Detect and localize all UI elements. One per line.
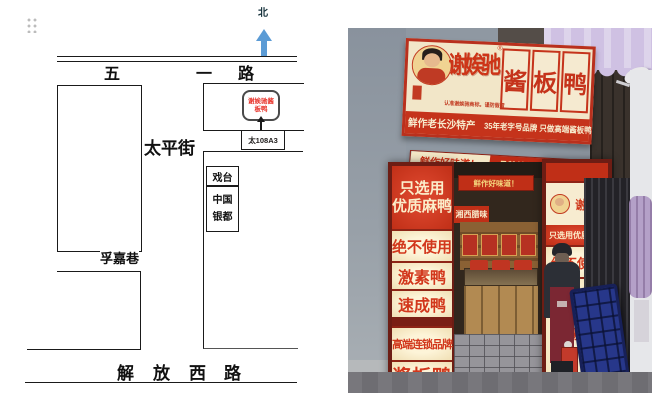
wuyi-char-1: 五: [104, 60, 120, 84]
pillar-divider: [392, 317, 452, 325]
taiping-street-label: 太平街: [144, 134, 195, 159]
strip-right-text: 35年老字号品牌 只做高端酱板鸭: [483, 120, 591, 137]
apron-logo: [557, 301, 567, 307]
tile-ya: 鸭: [560, 51, 591, 113]
registered-mark: ®: [497, 45, 502, 52]
counter-product: [470, 260, 488, 270]
storefront-photo: 谢娭驰 ® 认准谢娭驰商标。谨防假冒 酱 板 鸭 鲜作老长沙特产 35年老字号品…: [348, 28, 652, 393]
wuyi-char-2: 一: [196, 60, 212, 84]
address-plate: 太108A3: [241, 130, 285, 150]
product-box: [520, 234, 536, 256]
tile-ban: 板: [530, 50, 561, 112]
front-pavement: [348, 372, 652, 393]
north-label: 北: [258, 4, 268, 19]
left-sign-line1: 只选用: [399, 180, 444, 198]
purple-puffer-jacket: [629, 196, 652, 298]
brand-block: 谢娭驰 ® 认准谢娭驰商标。谨防假冒: [446, 43, 501, 115]
display-pants: [634, 300, 649, 342]
document-page: 北 五 一 路 太平街 孚嘉巷 谢娭驰酱 板鸭 太108A3 戏台 中国 银都 …: [0, 0, 665, 400]
shop-callout-line2: 板鸭: [255, 106, 268, 114]
wuyi-char-3: 路: [238, 60, 254, 84]
shop-callout-line1: 谢娭驰酱: [248, 98, 274, 106]
left-pillar-signs: 只选用 优质麻鸭 绝不使用 激素鸭 速成鸭 高端连锁品牌 酱板鸭: [388, 162, 456, 393]
jiefang-char-1: 解: [117, 359, 134, 384]
product-box: [501, 234, 517, 256]
jiefang-char-2: 放: [153, 359, 170, 384]
location-map: 北 五 一 路 太平街 孚嘉巷 谢娭驰酱 板鸭 太108A3 戏台 中国 银都 …: [0, 0, 340, 400]
strip-left-text: 鲜作老长沙特产: [405, 115, 476, 133]
left-sign-select-duck: 只选用 优质麻鸭: [392, 166, 452, 229]
main-signboard: 谢娭驰 ® 认准谢娭驰商标。谨防假冒 酱 板 鸭 鲜作老长沙特产 35年老字号品…: [402, 38, 596, 145]
wuyi-road-line: [57, 56, 297, 62]
display-counter: [464, 268, 538, 334]
sign-main-row: 谢娭驰 ® 认准谢娭驰商标。谨防假冒 酱 板 鸭: [406, 41, 593, 119]
counter-glass: [464, 268, 538, 286]
map-block-upper-left: [57, 85, 142, 252]
counter-front: [464, 286, 538, 334]
left-sign-line2: 优质麻鸭: [392, 198, 452, 216]
product-box: [481, 234, 497, 256]
mascot-portrait: [406, 41, 449, 113]
inner-side-sign: 湘西腊味: [454, 206, 489, 223]
counter-product: [492, 260, 510, 270]
jiefang-char-4: 路: [224, 359, 241, 384]
jiefang-char-3: 西: [189, 359, 206, 384]
product-box: [462, 234, 478, 256]
poi-yindu-line1: 中国: [213, 192, 233, 209]
left-sign-fastgrown-duck: 速成鸭: [392, 289, 452, 317]
map-block-lower-left: [57, 271, 141, 349]
north-arrow-shaft: [261, 40, 267, 56]
mascot-face: [424, 53, 441, 68]
poi-yindu-box: 中国 银都: [206, 186, 239, 232]
mini-mascot-face: [550, 194, 570, 214]
poi-yindu-line2: 银都: [213, 209, 233, 226]
sign-disclaimer: 认准谢娭驰商标。谨防假冒: [444, 99, 512, 110]
counter-products: [470, 260, 532, 270]
left-sign-hormone-duck: 激素鸭: [392, 261, 452, 289]
poi-stage-label: 戏台: [213, 169, 233, 184]
jiefang-road-line: [25, 382, 297, 383]
fujia-lane-label: 孚嘉巷: [100, 248, 139, 267]
left-sign-chain-brand: 高端连锁品牌: [392, 326, 452, 361]
mascot-body: [417, 68, 446, 85]
shelf-products: [462, 234, 536, 256]
brand-name-script: 谢娭驰: [448, 45, 498, 80]
inner-banner: 鲜作好味道！: [458, 175, 534, 191]
counter-product: [514, 260, 532, 270]
lower-left-bottom-line: [27, 349, 141, 350]
poi-stage-box: 戏台: [206, 166, 239, 186]
left-sign-never-use: 绝不使用: [392, 229, 452, 261]
drag-handle-icon[interactable]: [25, 16, 37, 33]
store-entrance: 鲜作好味道！ 湘西腊味: [454, 162, 544, 393]
red-seal: [412, 85, 422, 99]
